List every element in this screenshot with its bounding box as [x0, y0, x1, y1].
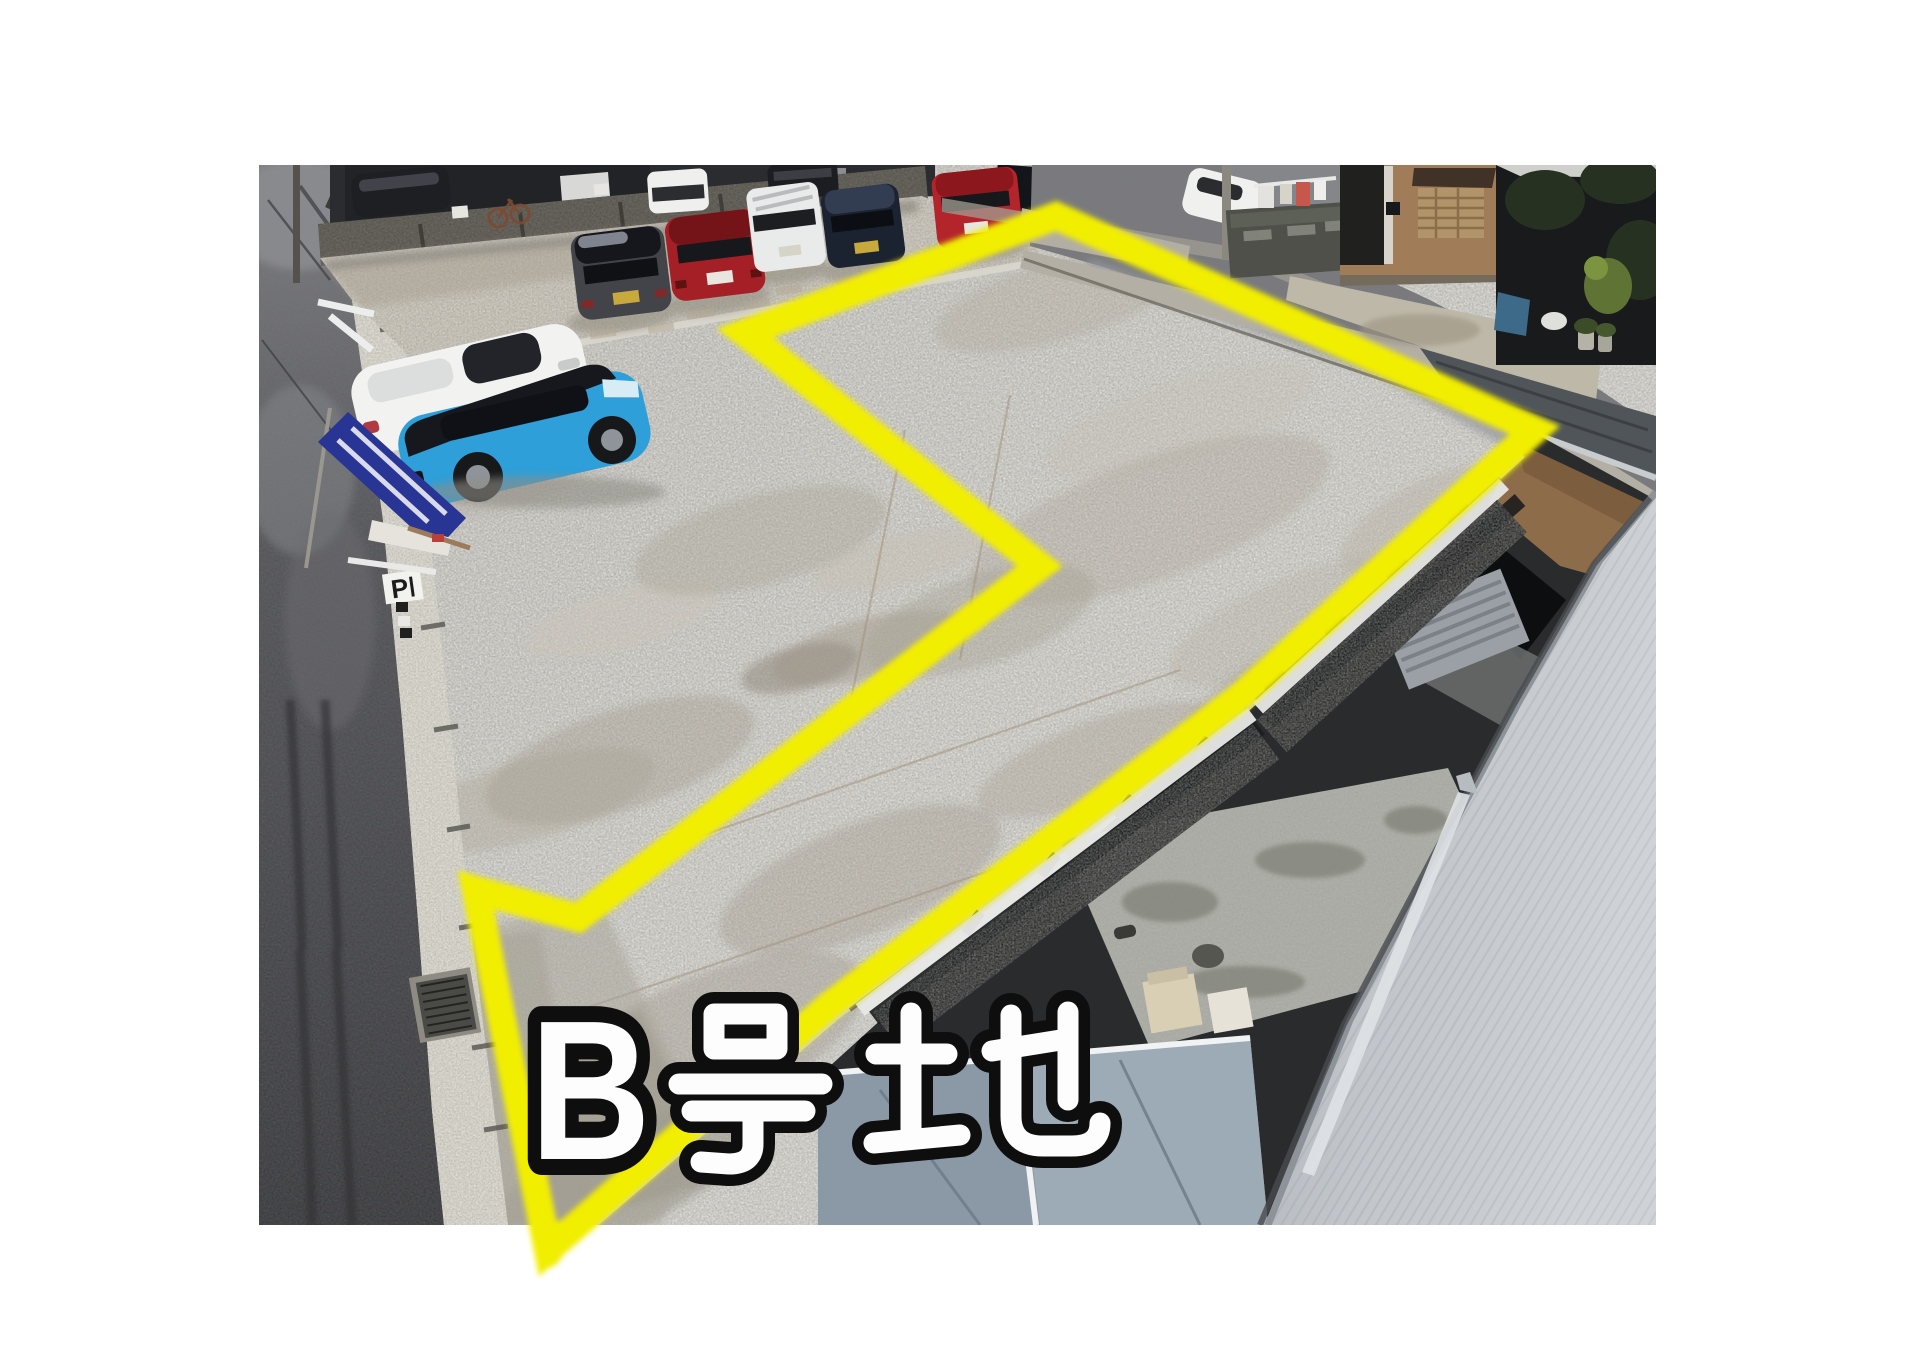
svg-text:B: B — [530, 979, 651, 1201]
